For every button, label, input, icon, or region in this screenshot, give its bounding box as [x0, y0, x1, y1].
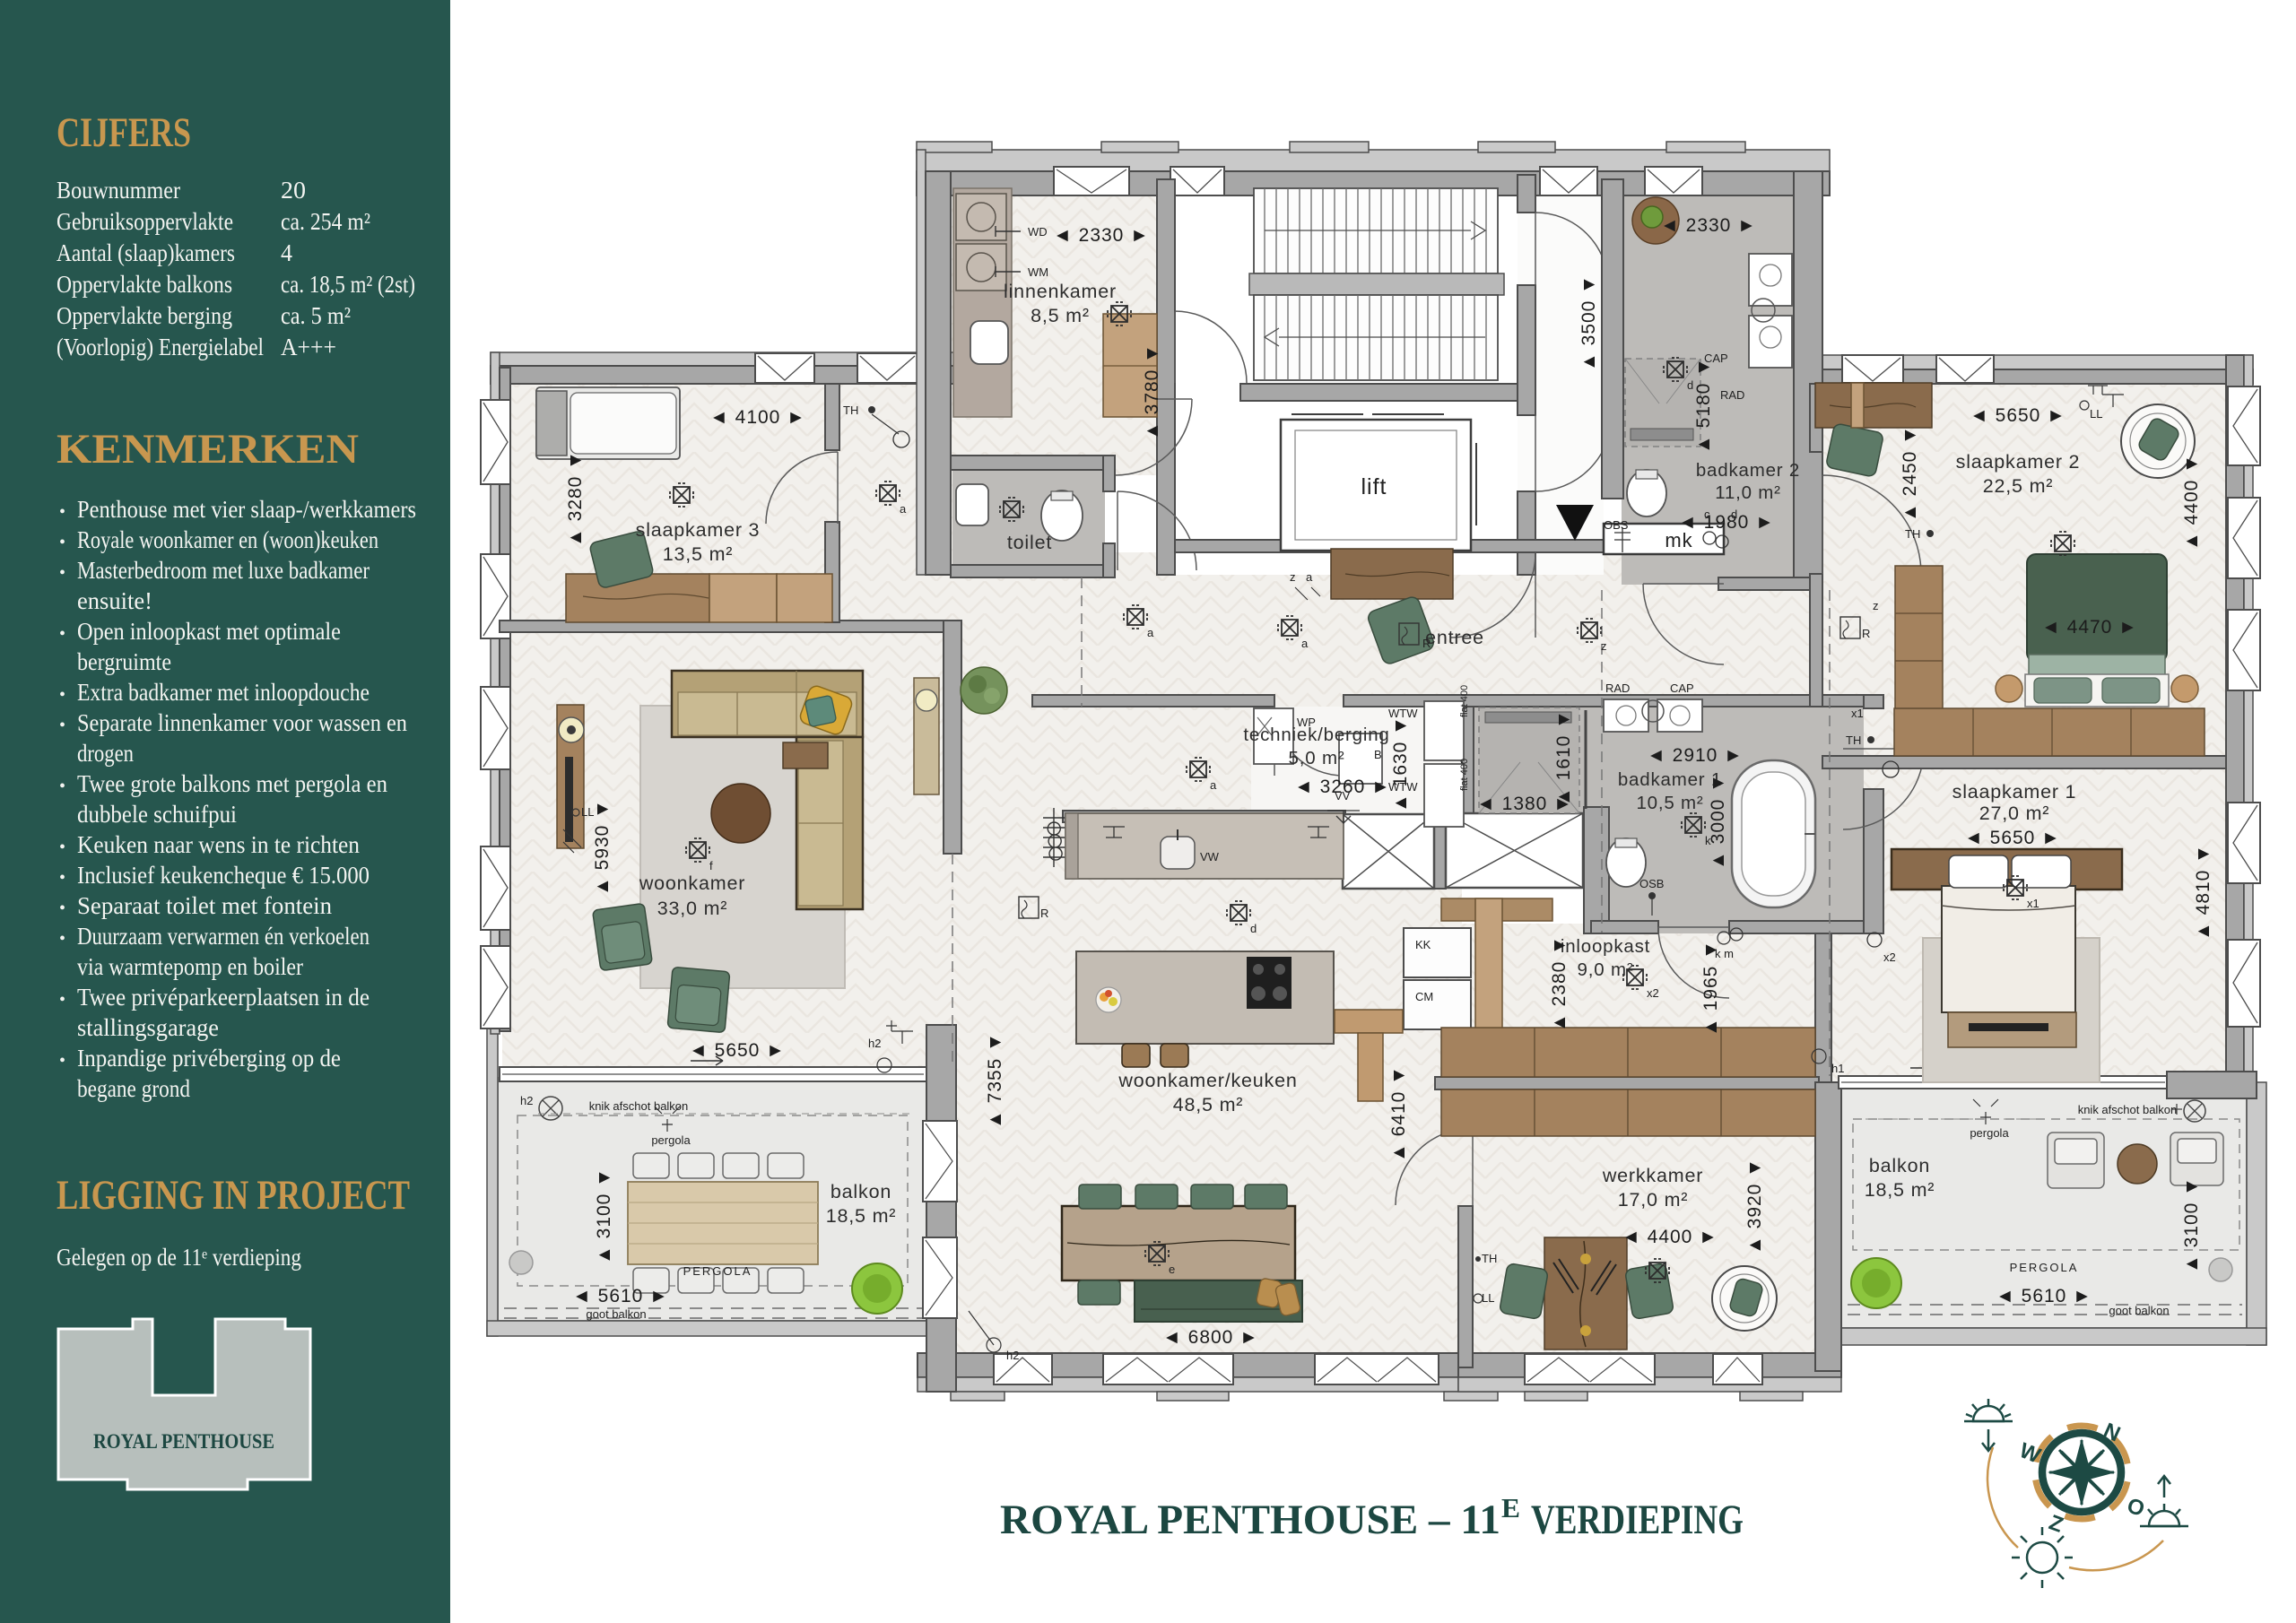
svg-text:TH: TH	[843, 404, 858, 417]
svg-text:x2: x2	[1883, 950, 1896, 964]
svg-text:Oppervlakte berging: Oppervlakte berging	[57, 302, 232, 329]
svg-text:•: •	[59, 685, 65, 705]
svg-text:balkon: balkon	[1869, 1155, 1930, 1176]
svg-text:WM: WM	[1028, 265, 1048, 279]
svg-text:RAD: RAD	[1605, 681, 1630, 695]
svg-text:22,5 m²: 22,5 m²	[1983, 475, 2054, 497]
svg-text:VW: VW	[1200, 850, 1220, 864]
svg-text:◄ 4100 ►: ◄ 4100 ►	[709, 407, 806, 428]
svg-text:TH: TH	[1482, 1252, 1497, 1265]
svg-text:Inclusief keukencheque € 15.00: Inclusief keukencheque € 15.000	[77, 862, 370, 889]
svg-text:(Voorlopig) Energielabel: (Voorlopig) Energielabel	[57, 334, 264, 360]
svg-text:▲ 7355 ▼: ▲ 7355 ▼	[985, 1032, 1005, 1129]
svg-text:Masterbedroom met luxe badkame: Masterbedroom met luxe badkamer	[77, 557, 370, 584]
svg-text:▲ 6410 ▼: ▲ 6410 ▼	[1388, 1065, 1409, 1162]
svg-text:Royale woonkamer en (woon)keuk: Royale woonkamer en (woon)keuken	[77, 526, 378, 553]
svg-text:20: 20	[281, 177, 306, 204]
svg-text:e: e	[1169, 1263, 1175, 1276]
svg-text:Oppervlakte balkons: Oppervlakte balkons	[57, 271, 232, 298]
svg-text:x1: x1	[1851, 707, 1864, 720]
svg-text:balkon: balkon	[831, 1181, 891, 1202]
svg-text:▲ 3100 ▼: ▲ 3100 ▼	[594, 1167, 614, 1264]
svg-text:c: c	[1704, 508, 1710, 521]
svg-text:CAP: CAP	[1704, 352, 1728, 365]
svg-text:Keuken naar wens in te richten: Keuken naar wens in te richten	[77, 831, 360, 858]
svg-text:Aantal (slaap)kamers: Aantal (slaap)kamers	[57, 239, 235, 266]
svg-text:◄ 4470 ►: ◄ 4470 ►	[2041, 617, 2138, 638]
svg-text:▲ 3780 ▼: ▲ 3780 ▼	[1142, 343, 1162, 440]
svg-text:VERDIEPING: VERDIEPING	[1531, 1497, 1744, 1543]
svg-text:4: 4	[281, 239, 292, 266]
svg-text:◄ 2330 ►: ◄ 2330 ►	[1053, 225, 1150, 246]
svg-text:•: •	[59, 533, 65, 552]
svg-text:techniek/berging: techniek/berging	[1243, 725, 1389, 745]
svg-text:LL: LL	[581, 805, 594, 819]
svg-text:goot balkon: goot balkon	[2109, 1304, 2169, 1317]
svg-text:a: a	[900, 502, 907, 516]
svg-text:•: •	[59, 868, 65, 888]
svg-text:◄ 4400 ►: ◄ 4400 ►	[1622, 1227, 1718, 1247]
svg-text:pergola: pergola	[651, 1133, 691, 1147]
svg-text:Open inloopkast met optimale: Open inloopkast met optimale	[77, 618, 341, 645]
svg-text:h1: h1	[1831, 1062, 1844, 1075]
svg-text:◄ 1980 ►: ◄ 1980 ►	[1678, 512, 1775, 533]
svg-text:woonkamer/keuken: woonkamer/keuken	[1118, 1070, 1297, 1091]
svg-text:48,5 m²: 48,5 m²	[1173, 1094, 1244, 1115]
svg-text:PERGOLA: PERGOLA	[683, 1264, 752, 1278]
svg-text:▲ 3920 ▼: ▲ 3920 ▼	[1744, 1158, 1765, 1254]
svg-text:◄ 2910 ►: ◄ 2910 ►	[1647, 745, 1744, 766]
svg-text:R: R	[1862, 627, 1870, 640]
svg-text:KENMERKEN: KENMERKEN	[57, 426, 359, 473]
svg-text:begane grond: begane grond	[77, 1075, 190, 1102]
svg-text:d: d	[1687, 378, 1693, 392]
svg-text:•: •	[59, 624, 65, 644]
svg-text:◄ 5650 ►: ◄ 5650 ►	[1970, 405, 2066, 426]
svg-text:17,0 m²: 17,0 m²	[1618, 1189, 1689, 1211]
svg-text:11,0 m²: 11,0 m²	[1715, 482, 1781, 503]
svg-text:k: k	[1705, 834, 1711, 847]
svg-text:f: f	[709, 859, 713, 872]
svg-text:drogen: drogen	[77, 740, 134, 767]
svg-text:VV: VV	[1335, 789, 1351, 803]
svg-text:◄ 5610 ►: ◄ 5610 ►	[572, 1286, 669, 1306]
svg-text:a: a	[1210, 778, 1217, 792]
svg-text:Separaat toilet met fontein: Separaat toilet met fontein	[77, 892, 332, 919]
svg-text:13,5 m²: 13,5 m²	[663, 543, 734, 565]
svg-text:•: •	[59, 898, 65, 918]
svg-text:Bouwnummer: Bouwnummer	[57, 177, 180, 204]
svg-text:ensuite!: ensuite!	[77, 587, 152, 614]
svg-text:8,5 m²: 8,5 m²	[1031, 305, 1090, 326]
svg-text:flat 400: flat 400	[1459, 685, 1470, 717]
svg-text:▲ 3100 ▼: ▲ 3100 ▼	[2181, 1176, 2202, 1273]
svg-text:ca. 5 m²: ca. 5 m²	[281, 302, 351, 329]
svg-text:Penthouse met vier slaap-/werk: Penthouse met vier slaap-/werkkamers	[77, 496, 416, 523]
svg-text:27,0 m²: 27,0 m²	[1979, 803, 2050, 824]
svg-text:h2: h2	[868, 1037, 881, 1050]
svg-text:•: •	[59, 563, 65, 583]
svg-text:WTW: WTW	[1388, 707, 1418, 720]
svg-text:d: d	[1250, 922, 1257, 935]
svg-text:x2: x2	[1647, 986, 1659, 1000]
svg-text:•: •	[59, 990, 65, 1010]
svg-text:▲ 5180 ▼: ▲ 5180 ▼	[1693, 357, 1714, 454]
svg-text:k m: k m	[1715, 947, 1734, 960]
svg-text:toilet: toilet	[1007, 532, 1052, 553]
svg-text:▲ 4810 ▼: ▲ 4810 ▼	[2193, 844, 2213, 941]
svg-text:z: z	[1873, 599, 1879, 612]
svg-text:9,0 m²: 9,0 m²	[1578, 959, 1634, 980]
svg-text:woonkamer: woonkamer	[639, 872, 745, 894]
svg-text:WTW: WTW	[1388, 780, 1418, 794]
svg-text:E: E	[1501, 1492, 1520, 1523]
svg-text:▲ 3280 ▼: ▲ 3280 ▼	[565, 450, 586, 547]
svg-text:5,0 m²: 5,0 m²	[1289, 748, 1345, 768]
svg-text:d: d	[1731, 508, 1737, 521]
svg-text:•: •	[59, 838, 65, 857]
svg-text:A+++: A+++	[281, 334, 336, 360]
svg-text:a: a	[1301, 637, 1309, 650]
svg-text:▲ 3000 ▼: ▲ 3000 ▼	[1708, 773, 1728, 870]
svg-text:Twee grote balkons met pergola: Twee grote balkons met pergola en	[77, 770, 387, 797]
svg-text:LL: LL	[1482, 1291, 1494, 1305]
svg-text:▲ 5930 ▼: ▲ 5930 ▼	[592, 799, 613, 896]
svg-text:dubbele schuifpui: dubbele schuifpui	[77, 801, 237, 828]
svg-text:slaapkamer 3: slaapkamer 3	[636, 519, 761, 541]
svg-text:CIJFERS: CIJFERS	[57, 109, 191, 156]
svg-text:h2: h2	[520, 1094, 533, 1107]
svg-text:•: •	[59, 929, 65, 949]
svg-text:WP: WP	[1297, 716, 1316, 729]
svg-text:•: •	[59, 502, 65, 522]
svg-text:werkkamer: werkkamer	[1602, 1165, 1703, 1186]
svg-text:18,5 m²: 18,5 m²	[1865, 1179, 1935, 1201]
svg-text:•: •	[59, 716, 65, 735]
svg-text:RAD: RAD	[1720, 388, 1744, 402]
svg-text:flat 400: flat 400	[1459, 759, 1470, 791]
svg-text:bergruimte: bergruimte	[77, 648, 171, 675]
svg-text:Separate linnenkamer voor wass: Separate linnenkamer voor wassen en	[77, 709, 407, 736]
svg-text:inloopkast: inloopkast	[1561, 936, 1650, 957]
svg-text:OSB: OSB	[1639, 877, 1664, 890]
svg-text:▲ 3500 ▼: ▲ 3500 ▼	[1578, 274, 1599, 371]
svg-text:Duurzaam verwarmen én verkoele: Duurzaam verwarmen én verkoelen	[77, 923, 370, 950]
svg-text:•: •	[59, 1051, 65, 1071]
svg-text:KK: KK	[1415, 938, 1431, 951]
svg-text:◄ 5610 ►: ◄ 5610 ►	[1996, 1286, 2092, 1306]
svg-text:33,0 m²: 33,0 m²	[657, 898, 728, 919]
svg-text:PERGOLA: PERGOLA	[2010, 1261, 2079, 1274]
svg-text:slaapkamer 1: slaapkamer 1	[1952, 781, 2077, 803]
svg-text:stallingsgarage: stallingsgarage	[77, 1014, 219, 1041]
svg-text:via warmtepomp en boiler: via warmtepomp en boiler	[77, 953, 303, 980]
svg-text:Extra badkamer met inloopdouch: Extra badkamer met inloopdouche	[77, 679, 370, 706]
svg-text:pergola: pergola	[1970, 1126, 2009, 1140]
svg-text:entree: entree	[1425, 627, 1484, 648]
svg-text:x1: x1	[2027, 897, 2039, 910]
svg-text:CM: CM	[1415, 990, 1433, 1003]
svg-text:a: a	[1306, 570, 1313, 584]
svg-text:◄ 1380 ►: ◄ 1380 ►	[1476, 794, 1573, 814]
svg-text:LL: LL	[2090, 407, 2102, 421]
svg-text:◄ 6800 ►: ◄ 6800 ►	[1162, 1327, 1259, 1348]
svg-text:knik afschot balkon: knik afschot balkon	[589, 1099, 689, 1113]
svg-text:B: B	[1374, 748, 1382, 761]
svg-text:OBS: OBS	[1604, 518, 1629, 532]
svg-text:R: R	[1040, 907, 1048, 920]
svg-text:10,5 m²: 10,5 m²	[1636, 793, 1703, 813]
svg-text:18,5 m²: 18,5 m²	[826, 1205, 897, 1227]
svg-text:◄ 2330 ►: ◄ 2330 ►	[1660, 215, 1757, 236]
svg-text:◄ 5650 ►: ◄ 5650 ►	[1964, 828, 2061, 848]
svg-text:▲ 4400 ▼: ▲ 4400 ▼	[2181, 454, 2202, 551]
svg-text:TH: TH	[1846, 733, 1861, 747]
svg-text:▲ 2380 ▼: ▲ 2380 ▼	[1549, 935, 1570, 1032]
svg-text:Twee privéparkeerplaatsen in d: Twee privéparkeerplaatsen in de	[77, 984, 370, 1011]
svg-text:goot balkon: goot balkon	[586, 1307, 646, 1321]
svg-text:h2: h2	[1006, 1349, 1019, 1362]
svg-text:WD: WD	[1028, 225, 1048, 239]
svg-text:LIGGING IN PROJECT: LIGGING IN PROJECT	[57, 1172, 410, 1219]
svg-text:linnenkamer: linnenkamer	[1004, 281, 1117, 302]
svg-text:lift: lift	[1361, 474, 1387, 499]
svg-text:slaapkamer 2: slaapkamer 2	[1956, 451, 2081, 473]
svg-text:R: R	[1422, 637, 1431, 650]
svg-text:Gelegen op de 11ᵉ verdieping: Gelegen op de 11ᵉ verdieping	[57, 1244, 301, 1271]
svg-text:◄ 5650 ►: ◄ 5650 ►	[689, 1040, 786, 1061]
svg-text:▲ 1630 ▼: ▲ 1630 ▼	[1390, 716, 1411, 812]
svg-text:CAP: CAP	[1670, 681, 1694, 695]
svg-text:z: z	[1290, 570, 1296, 584]
svg-text:knik afschot balkon: knik afschot balkon	[2078, 1103, 2178, 1116]
svg-text:Inpandige privéberging op de: Inpandige privéberging op de	[77, 1045, 341, 1072]
svg-text:▲ 1610 ▼: ▲ 1610 ▼	[1553, 709, 1574, 806]
svg-text:Gebruiksoppervlakte: Gebruiksoppervlakte	[57, 208, 233, 235]
svg-text:▲ 2450 ▼: ▲ 2450 ▼	[1900, 425, 1920, 522]
svg-text:ca. 254 m²: ca. 254 m²	[281, 208, 370, 235]
svg-text:badkamer 2: badkamer 2	[1696, 460, 1800, 481]
svg-text:z: z	[1601, 639, 1607, 653]
svg-text:•: •	[59, 777, 65, 796]
svg-text:badkamer 1: badkamer 1	[1618, 769, 1722, 790]
svg-text:TH: TH	[1905, 527, 1920, 541]
svg-text:ROYAL PENTHOUSE: ROYAL PENTHOUSE	[93, 1430, 274, 1453]
svg-text:ca. 18,5 m² (2st): ca. 18,5 m² (2st)	[281, 271, 415, 298]
svg-text:ROYAL PENTHOUSE – 11: ROYAL PENTHOUSE – 11	[1000, 1497, 1500, 1543]
svg-text:a: a	[1147, 626, 1154, 639]
